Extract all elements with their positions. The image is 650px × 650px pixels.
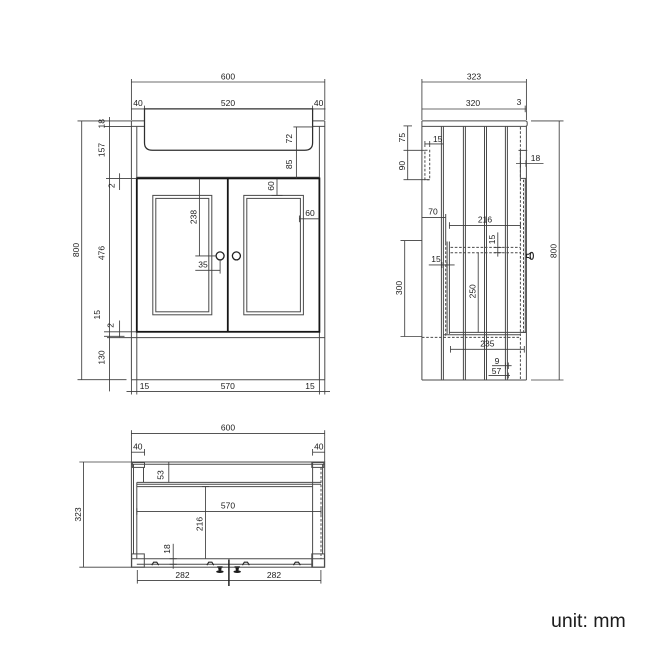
svg-text:75: 75	[397, 133, 407, 143]
svg-text:282: 282	[175, 570, 189, 580]
svg-text:570: 570	[221, 501, 235, 511]
svg-text:2: 2	[107, 183, 117, 188]
svg-text:35: 35	[198, 259, 208, 269]
svg-text:130: 130	[96, 350, 106, 364]
svg-text:18: 18	[96, 119, 106, 129]
svg-text:476: 476	[96, 246, 106, 260]
svg-text:72: 72	[284, 134, 294, 144]
svg-text:800: 800	[71, 243, 81, 257]
svg-text:282: 282	[267, 570, 281, 580]
svg-text:70: 70	[428, 206, 438, 216]
svg-text:15: 15	[433, 134, 443, 144]
svg-text:323: 323	[467, 72, 481, 82]
svg-text:18: 18	[162, 544, 172, 554]
svg-text:3: 3	[517, 97, 522, 107]
svg-text:9: 9	[495, 356, 500, 366]
svg-text:40: 40	[314, 441, 324, 451]
svg-text:15: 15	[431, 254, 441, 264]
svg-text:53: 53	[155, 470, 165, 480]
svg-text:320: 320	[466, 98, 480, 108]
svg-text:300: 300	[394, 281, 404, 295]
svg-text:18: 18	[531, 153, 541, 163]
svg-text:15: 15	[92, 310, 102, 320]
svg-text:250: 250	[467, 284, 477, 298]
svg-text:800: 800	[548, 244, 558, 258]
svg-text:2: 2	[106, 323, 116, 328]
svg-text:600: 600	[221, 423, 235, 433]
svg-text:57: 57	[492, 366, 502, 376]
svg-text:520: 520	[221, 98, 235, 108]
svg-text:60: 60	[266, 181, 276, 191]
svg-text:60: 60	[305, 208, 315, 218]
svg-text:238: 238	[189, 210, 199, 224]
svg-text:unit: mm: unit: mm	[551, 610, 626, 632]
svg-text:85: 85	[284, 159, 294, 169]
svg-text:323: 323	[73, 507, 83, 521]
svg-text:235: 235	[480, 338, 494, 348]
svg-text:157: 157	[96, 143, 106, 157]
svg-text:40: 40	[133, 98, 143, 108]
svg-text:90: 90	[397, 161, 407, 171]
svg-text:15: 15	[305, 381, 315, 391]
svg-text:570: 570	[221, 381, 235, 391]
svg-text:216: 216	[478, 214, 492, 224]
svg-text:15: 15	[487, 235, 497, 245]
svg-text:40: 40	[314, 98, 324, 108]
svg-text:40: 40	[133, 441, 143, 451]
svg-text:600: 600	[221, 72, 235, 82]
svg-text:216: 216	[195, 517, 205, 531]
svg-text:15: 15	[140, 381, 150, 391]
